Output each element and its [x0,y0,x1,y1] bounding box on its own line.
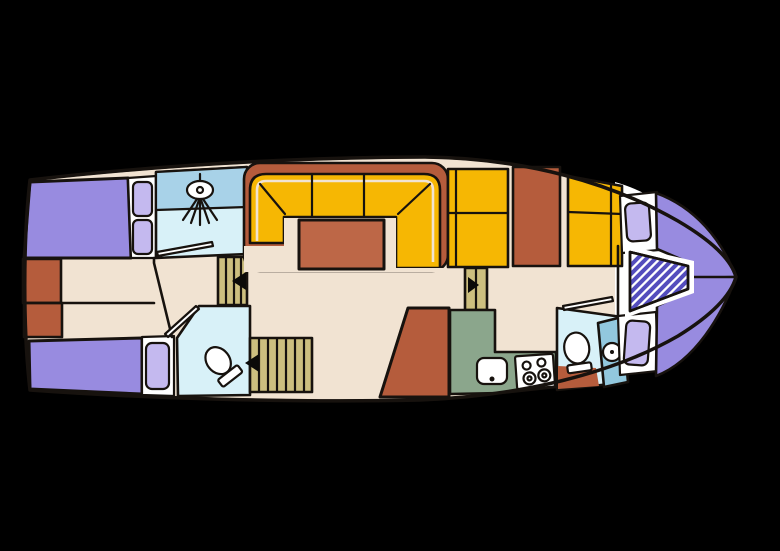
aft-cabinet-lower [24,303,62,337]
boat-floorplan [0,0,780,551]
pillow [133,220,152,254]
aft-bed-starboard [29,338,142,394]
pillow [146,343,169,389]
pillow [625,202,652,242]
salon-table [299,220,384,269]
aft-bed-port [24,178,131,258]
pillow [133,182,152,216]
sink-drain [610,350,614,354]
sink-drain [490,377,495,382]
aft-cabinet-upper [23,259,61,303]
wardrobe [513,167,560,266]
